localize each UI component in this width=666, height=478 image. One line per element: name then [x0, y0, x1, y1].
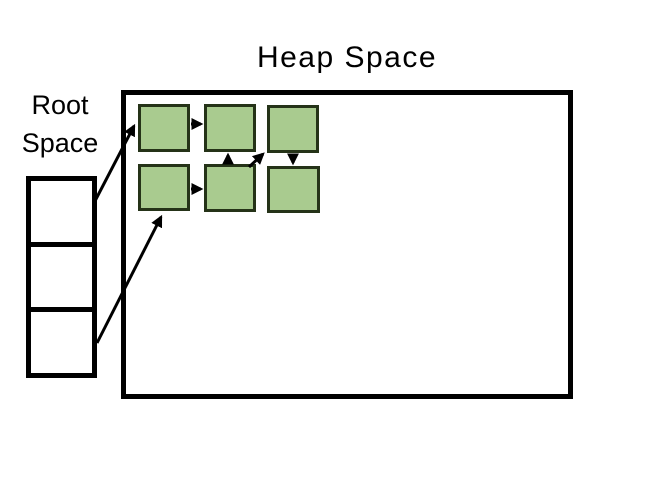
- heap-object-6: [267, 166, 320, 213]
- root-space-stack: [26, 176, 97, 378]
- root-cell-1: [31, 181, 92, 242]
- heap-object-4: [138, 164, 190, 211]
- heap-object-1: [138, 104, 190, 152]
- heap-space-title: Heap Space: [121, 41, 573, 75]
- root-cell-2: [31, 242, 92, 308]
- root-space-label: Root Space: [5, 86, 115, 162]
- gc-memory-diagram: Heap Space Root Space: [0, 0, 666, 478]
- heap-object-3: [267, 105, 319, 153]
- heap-object-5: [204, 164, 256, 212]
- heap-object-2: [204, 104, 256, 152]
- root-cell-3: [31, 307, 92, 373]
